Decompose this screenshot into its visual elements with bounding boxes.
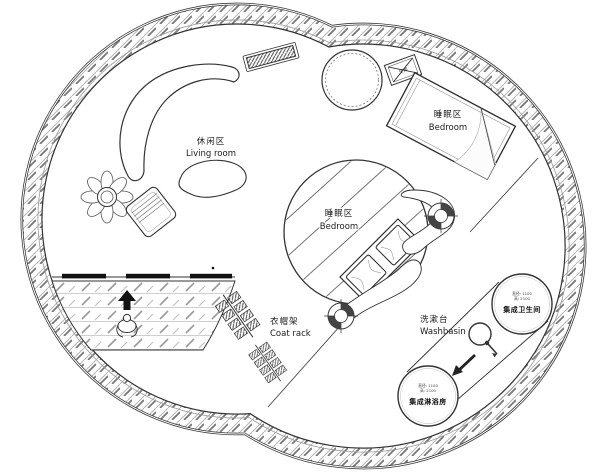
label-bedroom-upper-en: Bedroom	[429, 123, 467, 133]
shower-pod: 直径: 1100 高: 2100 集成淋浴房	[398, 366, 458, 426]
shower-pod-dim2: 高: 2100	[420, 388, 437, 393]
label-bedroom-upper-zh: 睡眠区	[434, 110, 463, 120]
toilet-pod-name: 集成卫生间	[502, 305, 541, 314]
wall-end-marker	[212, 267, 215, 270]
label-living-room-zh: 休闲区	[197, 136, 226, 147]
toilet-pod-dim2: 高: 2100	[514, 296, 531, 301]
label-bedroom-core-zh: 睡眠区	[325, 209, 354, 219]
floor-plan-page: 空调 睡眠区 Bedroom 睡眠区 Bedroom	[0, 0, 611, 473]
round-table	[322, 50, 382, 110]
label-bedroom-core-en: Bedroom	[320, 222, 358, 232]
label-coat-rack-zh: 衣帽架	[270, 316, 299, 327]
label-living-room-en: Living room	[186, 149, 236, 159]
label-coat-rack-en: Coat rack	[270, 329, 311, 339]
floor-plan-drawing: 空调 睡眠区 Bedroom 睡眠区 Bedroom	[0, 0, 611, 473]
shower-pod-name: 集成淋浴房	[408, 397, 447, 406]
toilet-pod: 直径: 1100 高: 2100 集成卫生间	[492, 274, 552, 334]
label-washbasin-zh: 洗漱台	[420, 314, 449, 325]
plant-icon	[81, 171, 133, 223]
glass-wall	[52, 274, 235, 279]
label-washbasin-en: Washbasin	[420, 327, 466, 337]
